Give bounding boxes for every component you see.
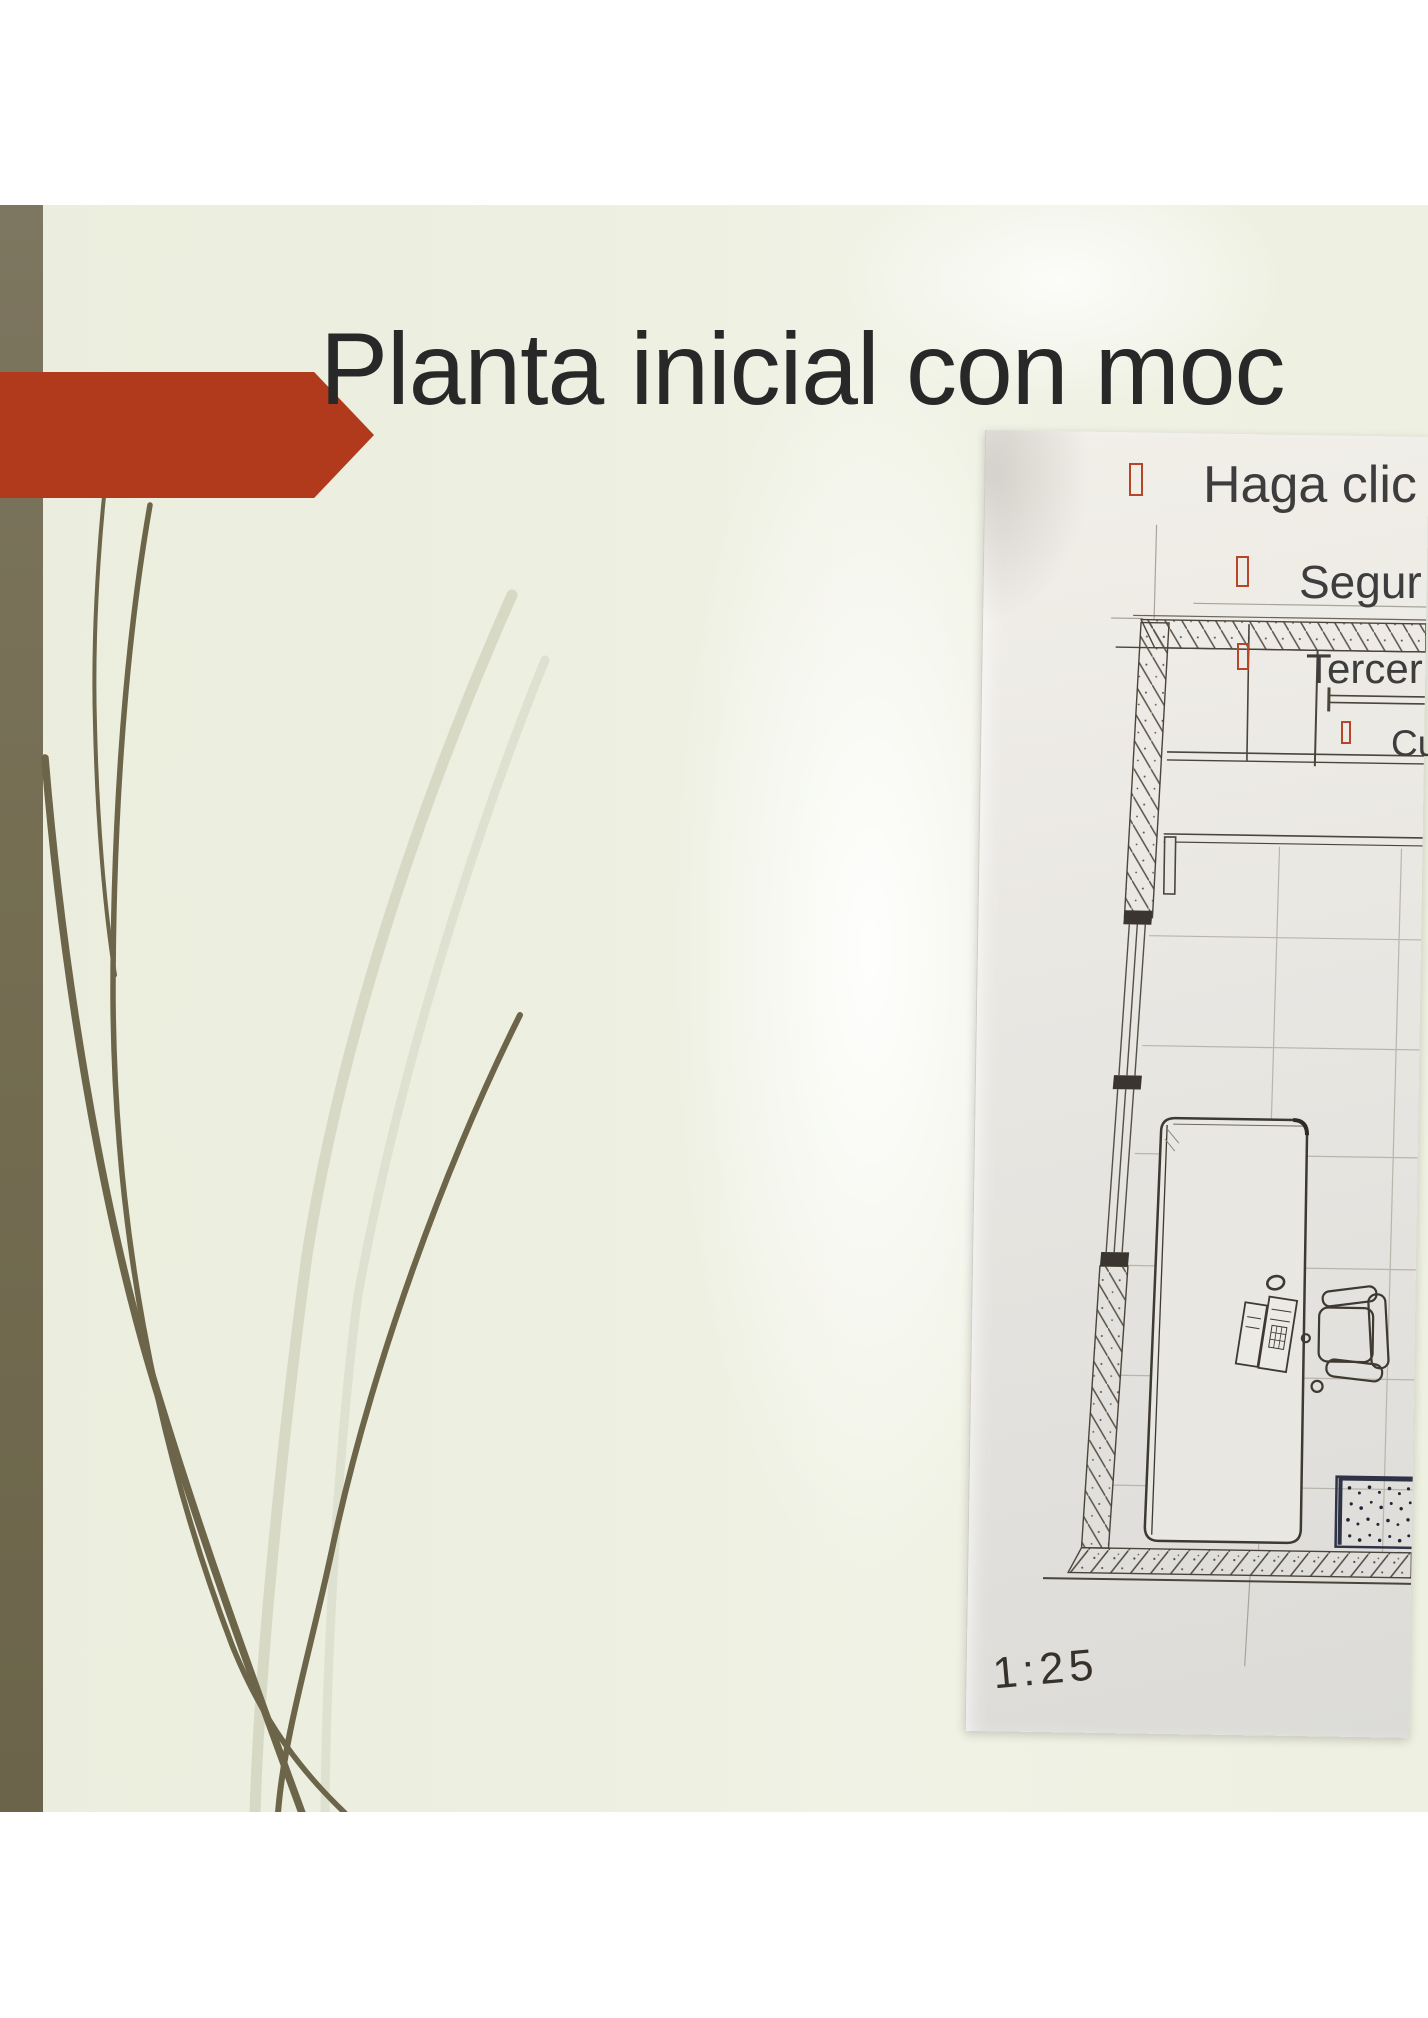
grass-blade xyxy=(325,660,545,1812)
floorplan-sketch: 1:25 xyxy=(966,430,1428,1738)
slide-canvas: 1:25 Haga clic Segur Tercer Cu Planta in… xyxy=(0,205,1428,1812)
bullet-tofu-icon xyxy=(1237,643,1249,670)
scale-annotation: 1:25 xyxy=(991,1640,1101,1698)
bullet-text-level1: Haga clic xyxy=(1203,457,1417,514)
bullet-text-level2: Segur xyxy=(1299,557,1422,608)
grass-blade xyxy=(255,595,512,1812)
grass-blade xyxy=(278,1015,520,1812)
doormat xyxy=(1336,1477,1417,1548)
bullet-text-level3: Tercer xyxy=(1306,646,1423,692)
notepads xyxy=(1236,1296,1298,1372)
bullet-tofu-icon xyxy=(1129,463,1143,496)
bullet-text-level4: Cu xyxy=(1391,724,1428,765)
title-arrow-shape xyxy=(0,372,374,498)
window xyxy=(1100,910,1153,1267)
floorplan-photo: 1:25 xyxy=(965,430,1428,1738)
bullet-tofu-icon xyxy=(1341,721,1351,744)
bullet-tofu-icon xyxy=(1236,556,1249,587)
slide-title: Planta inicial con moc xyxy=(320,317,1284,421)
desk-chair xyxy=(1301,1284,1390,1393)
